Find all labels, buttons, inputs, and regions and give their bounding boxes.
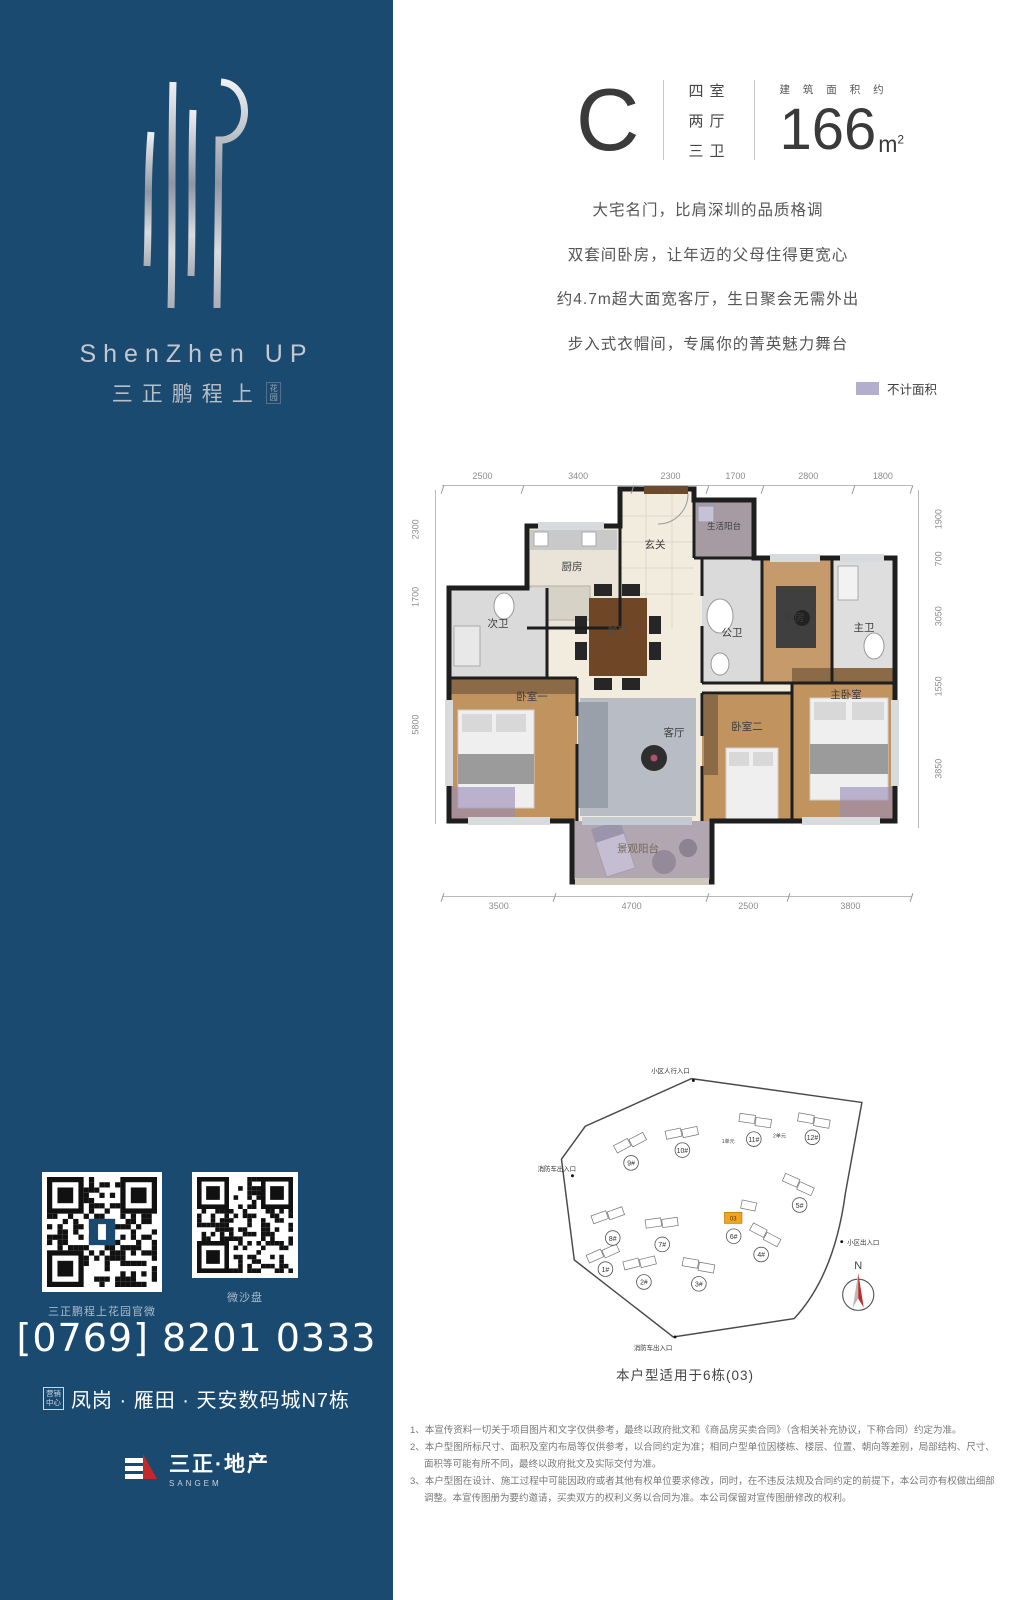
pillow (462, 714, 492, 732)
address-row: 营销 中心 凤岗 · 雁田 · 天安数码城N7栋 (0, 1384, 393, 1413)
dim: 2300 (396, 490, 435, 568)
dims-left: 2300 1700 5800 (396, 490, 436, 824)
pillow (496, 714, 526, 732)
no-area-patch (449, 787, 515, 821)
floorplan-section: 2500 3400 2300 1700 2800 1800 2300 1700 … (396, 450, 958, 920)
north-compass: N (843, 1260, 874, 1310)
building-label: 1# (598, 1262, 613, 1277)
entrance-bottom: 消防车出入口 (634, 1343, 672, 1352)
config-halls: 两厅 (688, 110, 730, 131)
brand-name-cn-suffix: 花园 (266, 382, 281, 404)
area-label: 建 筑 面 积 约 (779, 82, 904, 97)
siteplan-map: 03 1# 2# 3# 4# 5# 6# 7# 8# 9# 10# 11# 12… (518, 1042, 942, 1358)
disclaimer-line: 3、本户型图在设计、施工过程中可能因政府或者其他有权单位要求修改，同时，在不违反… (410, 1473, 1002, 1507)
company-name: 三正·地产 SANGEM (169, 1448, 270, 1488)
entrance-dot (674, 1335, 677, 1338)
legend: 不计面积 (856, 379, 937, 398)
dim: 5800 (396, 626, 435, 824)
dim: 1700 (396, 568, 435, 626)
svg-text:3#: 3# (695, 1282, 703, 1289)
dims-top: 2500 3400 2300 1700 2800 1800 (442, 450, 912, 486)
address-text: 凤岗 · 雁田 · 天安数码城N7栋 (71, 1384, 350, 1413)
disclaimer-block: 1、本宣传资料一切关于项目图片和文字仅供参考，最终以政府批文和《商品房买卖合同》… (410, 1422, 1002, 1507)
dim: 1700 (708, 471, 763, 485)
legend-label: 不计面积 (887, 379, 937, 398)
svg-text:11#: 11# (748, 1137, 759, 1144)
svg-text:10#: 10# (677, 1148, 689, 1155)
wardrobe (704, 695, 718, 775)
unit-label: 1单元 (722, 1138, 735, 1145)
room-label: 主卧室 (830, 688, 862, 701)
building-label: 9# (624, 1156, 639, 1171)
dims-bottom: 3500 4700 2500 3800 (442, 896, 912, 920)
header-divider (663, 80, 664, 160)
dim: 2800 (763, 471, 854, 485)
entrance-top: 小区人行入口 (651, 1066, 689, 1075)
vanity (838, 566, 858, 600)
highlighted-unit-label: 03 (730, 1217, 737, 1223)
building-label: 4# (754, 1247, 769, 1262)
pillow (814, 702, 846, 720)
toilet (494, 593, 514, 619)
coffee-table-decor (651, 755, 658, 762)
brand-name-cn: 三正鹏程上 (112, 383, 262, 406)
toilet (864, 633, 884, 659)
dim: 1900 (919, 490, 958, 548)
wardrobe (449, 678, 577, 694)
dim: 1550 (919, 663, 958, 710)
svg-text:1#: 1# (602, 1267, 610, 1274)
room-label: 餐厅 (608, 624, 629, 637)
company-logo-icon (123, 1452, 159, 1484)
building-label: 5# (792, 1198, 807, 1213)
dining-table (589, 598, 647, 676)
disclaimer-line: 1、本宣传资料一切关于项目图片和文字仅供参考，最终以政府批文和《商品房买卖合同》… (410, 1422, 1002, 1439)
floorplan-drawing: 玄关 生活阳台 厨房 次卫 餐厅 公卫 书房 主卫 卧室一 客厅 卧室二 主卧室… (442, 486, 912, 890)
area-unit-sup: 2 (897, 132, 904, 146)
company-name-en: SANGEM (169, 1479, 270, 1488)
room-label: 卧室二 (731, 720, 763, 733)
svg-text:4#: 4# (757, 1252, 765, 1259)
room-label: 景观阳台 (617, 842, 659, 855)
brand-sidebar: ShenZhen UP 三正鹏程上 花园 三正鹏程上花园官微 微沙盘 [0769… (0, 0, 393, 1600)
sofa (578, 702, 608, 808)
entrance-left: 消防车出入口 (538, 1164, 576, 1173)
config-rooms: 四室 (688, 80, 730, 101)
qr-caption-sandbox: 微沙盘 (227, 1289, 263, 1305)
svg-text:6#: 6# (730, 1234, 738, 1241)
svg-text:12#: 12# (807, 1135, 819, 1142)
blanket (810, 744, 888, 774)
unit-label: 2单元 (773, 1132, 786, 1139)
area-unit-m: m (878, 131, 897, 157)
svg-text:8#: 8# (609, 1236, 617, 1243)
site-boundary (561, 1079, 861, 1337)
unit-config: 四室 两厅 三卫 (688, 80, 730, 161)
sales-center-badge: 营销 中心 (43, 1387, 64, 1410)
wardrobe (792, 668, 895, 682)
entrance-dot (692, 1079, 695, 1082)
no-area-patch (840, 787, 895, 821)
dim: 3500 (442, 897, 555, 911)
area-unit: m2 (878, 133, 904, 156)
room-label: 公卫 (722, 627, 743, 639)
qr-sandbox: 微沙盘 (192, 1172, 298, 1305)
tagline: 双套间卧房，让年迈的父母住得更宽心 (403, 243, 1013, 265)
dim: 2500 (708, 897, 789, 911)
room-label: 书房 (784, 611, 805, 624)
tagline: 步入式衣帽间，专属你的菁英魅力舞台 (403, 332, 1013, 354)
building-label: 6# (726, 1229, 741, 1244)
unit-header: C 四室 两厅 三卫 建 筑 面 积 约 166 m2 (520, 76, 960, 164)
room-label: 客厅 (664, 726, 685, 739)
pillow (729, 752, 749, 766)
header-divider (754, 80, 755, 160)
pillow (753, 752, 773, 766)
tagline: 大宅名门，比肩深圳的品质格调 (403, 198, 1013, 220)
svg-text:7#: 7# (658, 1242, 666, 1249)
entrance-right: 小区出入口 (847, 1237, 879, 1246)
dim: 2500 (442, 471, 523, 485)
building-label: 10# (675, 1143, 690, 1158)
room-label: 次卫 (488, 617, 509, 630)
building-label: 12# (805, 1130, 820, 1145)
svg-text:5#: 5# (796, 1203, 804, 1210)
dim: 4700 (555, 897, 707, 911)
area-value: 166 (779, 101, 876, 159)
dims-right: 1900 700 3050 1550 3850 (918, 490, 958, 828)
company-logo-row: 三正·地产 SANGEM (0, 1448, 393, 1488)
qr-code-icon (47, 1177, 157, 1287)
building-label: 7# (655, 1237, 670, 1252)
area-row: 166 m2 (779, 101, 904, 159)
unit-type-letter: C (576, 76, 640, 164)
room-label: 卧室一 (516, 690, 548, 703)
room-label: 生活阳台 (707, 521, 741, 531)
dim: 3850 (919, 710, 958, 828)
dim: 1800 (854, 471, 912, 485)
qr-official-account: 三正鹏程上花园官微 (42, 1172, 162, 1319)
dim: 700 (919, 548, 958, 569)
brand-name-en: ShenZhen UP (0, 340, 393, 369)
company-name-cn: 三正·地产 (169, 1448, 270, 1478)
brand-logo-icon (127, 70, 267, 320)
entrance-dot (571, 1174, 574, 1177)
qr-code-sandbox (192, 1172, 298, 1278)
entrance-dot (840, 1240, 843, 1243)
building-label: 11# (746, 1132, 761, 1147)
disclaimer-line: 2、本户型图所标尺寸、面积及室内布局等仅供参考，以合同约定为准；相同户型单位因楼… (410, 1439, 1002, 1473)
kitchen-stove (534, 532, 548, 546)
kitchen-sink (582, 532, 596, 546)
svg-text:2#: 2# (640, 1280, 648, 1287)
legend-swatch (856, 382, 879, 395)
entry-door (644, 486, 688, 494)
dim: 3400 (523, 471, 633, 485)
pillow (852, 702, 884, 720)
building-label: 8# (605, 1231, 620, 1246)
area-block: 建 筑 面 积 约 166 m2 (779, 82, 904, 159)
qr-section: 三正鹏程上花园官微 微沙盘 (42, 1172, 354, 1319)
north-label: N (854, 1260, 862, 1272)
dim: 3800 (789, 897, 912, 911)
building-label: 2# (637, 1275, 652, 1290)
room-label: 厨房 (562, 560, 583, 573)
room-label: 主卫 (854, 622, 875, 634)
toilet (711, 653, 729, 675)
shower (454, 626, 480, 666)
qr-code-official (42, 1172, 162, 1292)
dim: 3050 (919, 570, 958, 663)
blanket (458, 754, 534, 784)
tagline: 约4.7m超大面宽客厅，生日聚会无需外出 (403, 287, 1013, 309)
config-baths: 三卫 (688, 140, 730, 161)
poster-page: ShenZhen UP 三正鹏程上 花园 三正鹏程上花园官微 微沙盘 [0769… (0, 0, 1013, 1600)
dim: 2300 (633, 471, 708, 485)
phone-number: [0769] 8201 0333 (0, 1316, 393, 1360)
svg-text:9#: 9# (627, 1161, 635, 1168)
badge-line2: 中心 (46, 1399, 61, 1408)
qr-code-icon (197, 1177, 293, 1273)
siteplan-caption: 本户型适用于6栋(03) (616, 1364, 754, 1384)
room-label: 玄关 (645, 538, 666, 551)
marketing-taglines: 大宅名门，比肩深圳的品质格调 双套间卧房，让年迈的父母住得更宽心 约4.7m超大… (403, 198, 1013, 376)
brand-name-cn-row: 三正鹏程上 花园 (0, 378, 393, 408)
building-label: 3# (692, 1276, 707, 1291)
